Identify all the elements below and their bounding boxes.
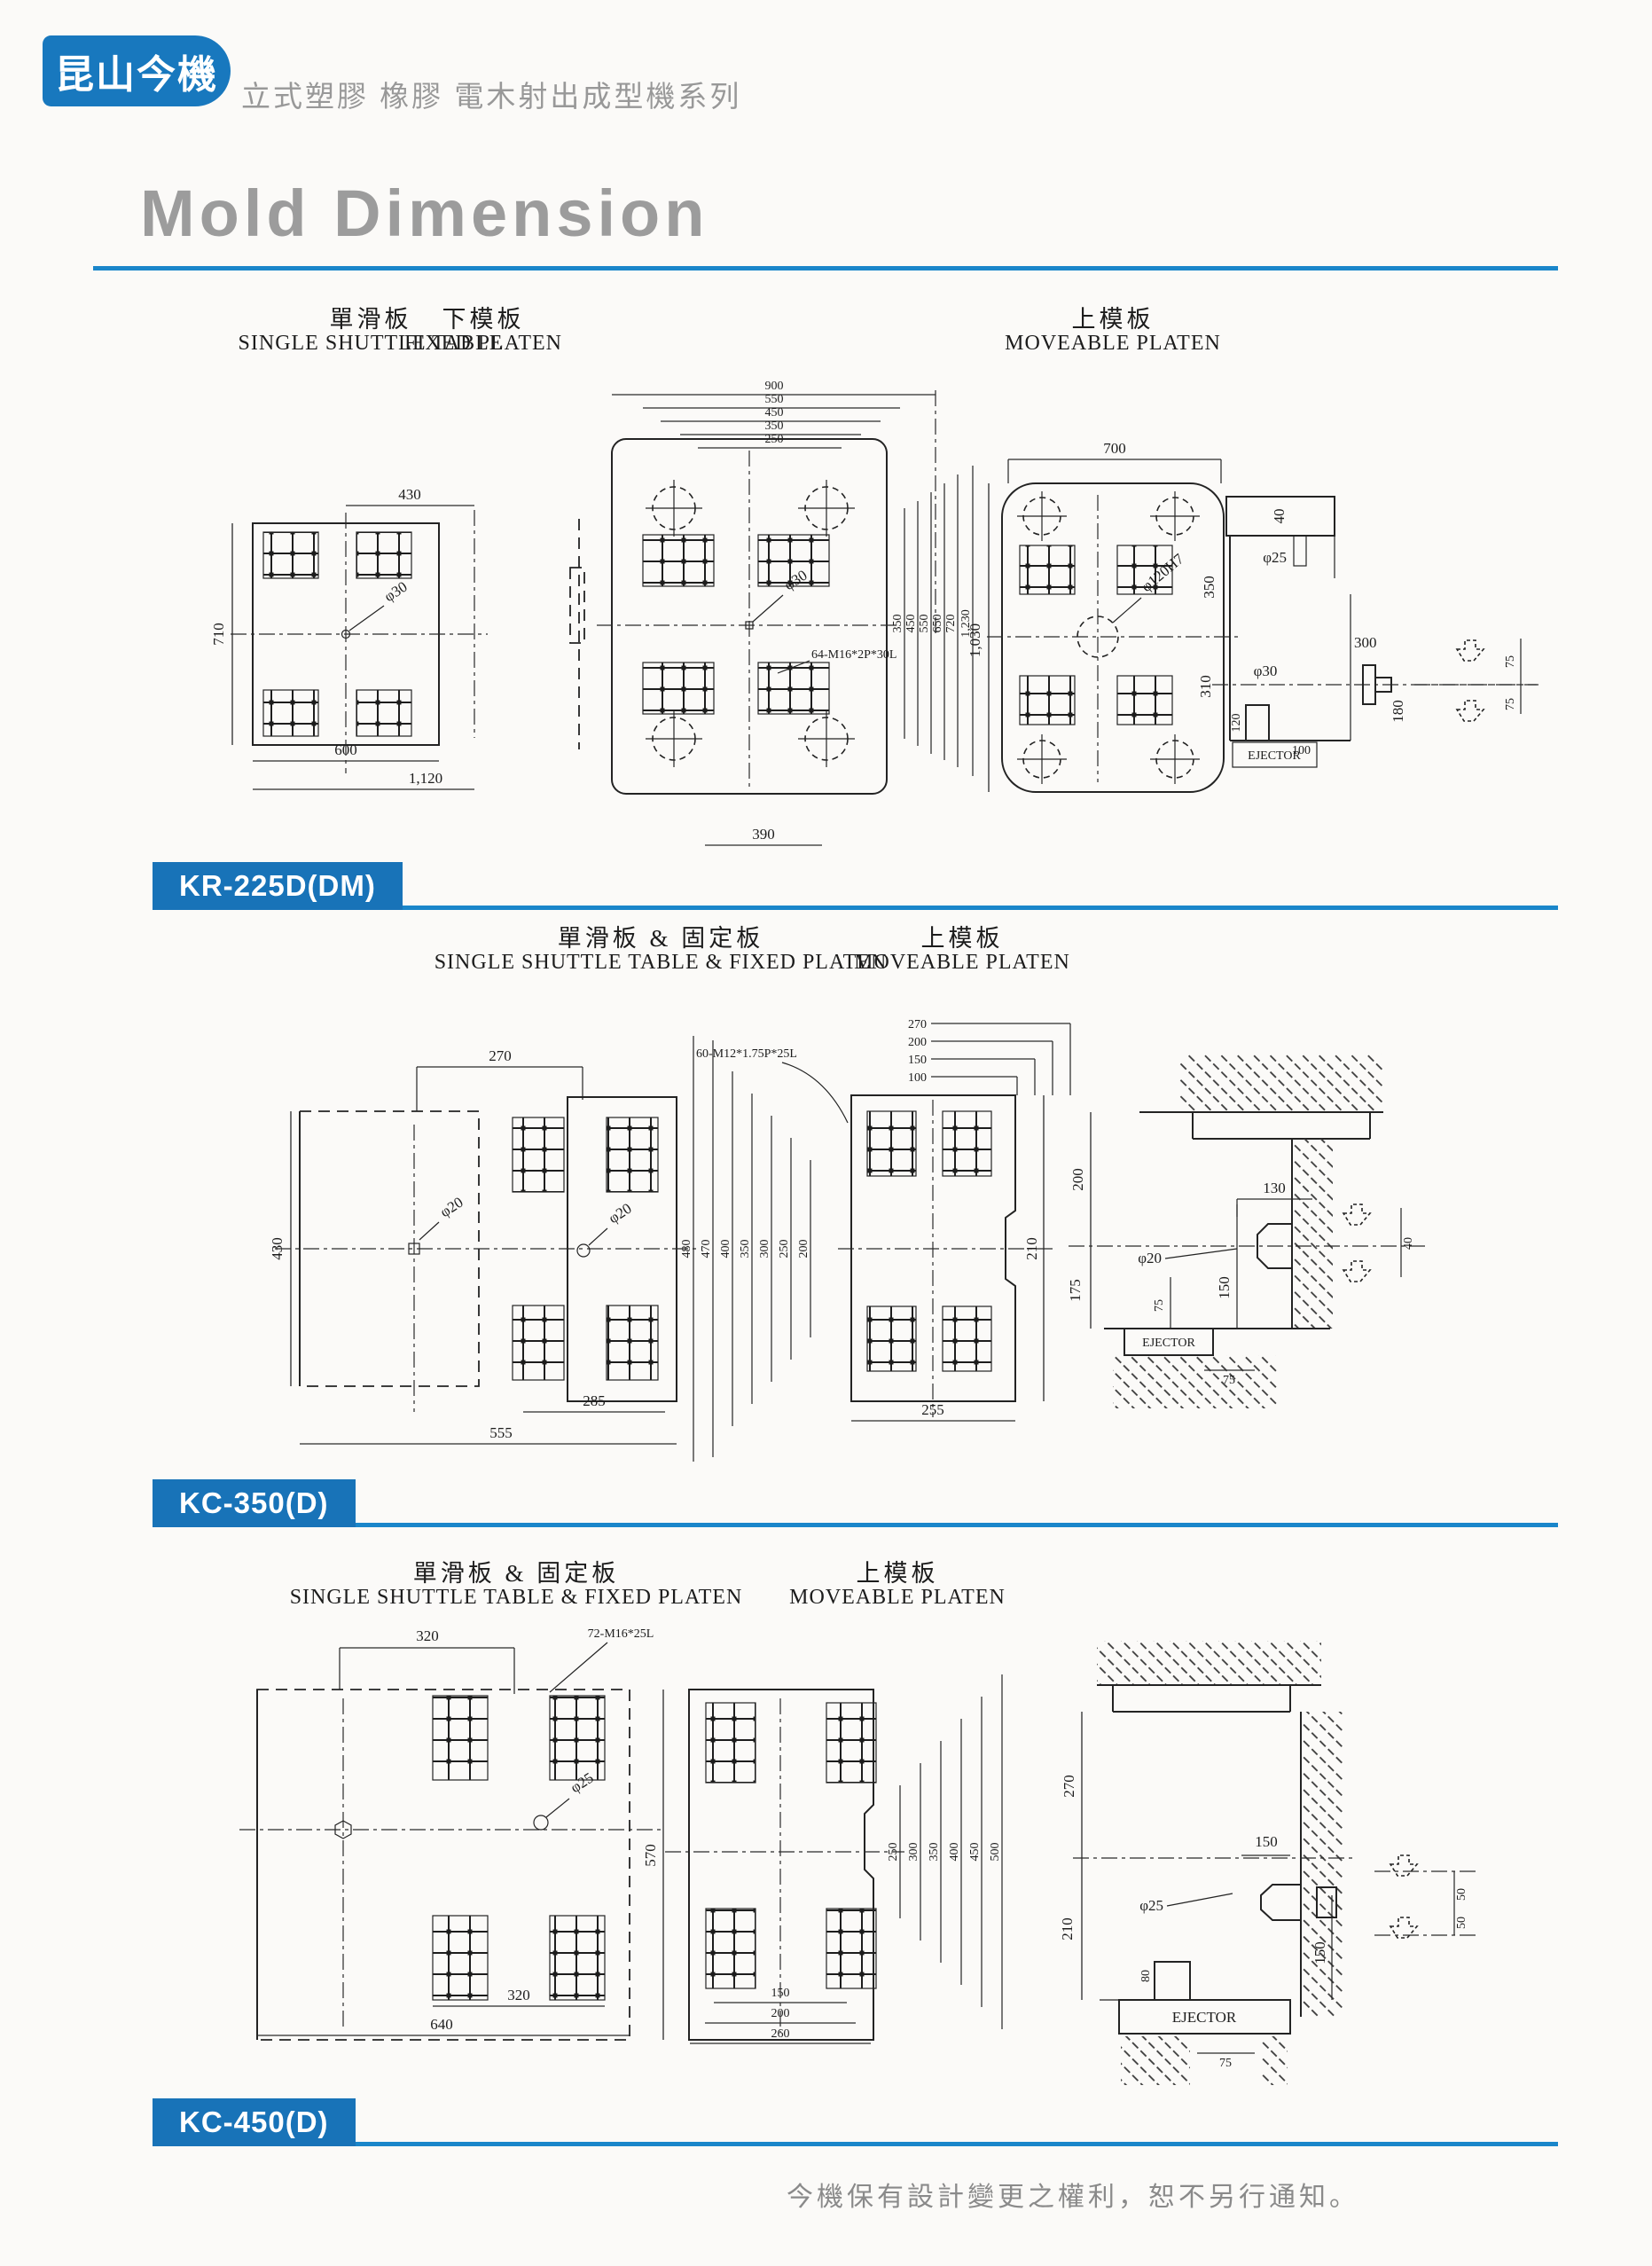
s1-fixed-platen-drawing: 900 550 450 350 250 φ30 64-M16*2P*30L 35… (545, 359, 998, 869)
dim-label: 1,030 (967, 623, 983, 657)
dim-label: 1,120 (409, 770, 442, 787)
plate-outline (987, 483, 1239, 792)
clamp-icon (1457, 701, 1484, 721)
s3-ejector-side-view: 270 210 150 φ25 150 80 EJECTOR 75 50 (1064, 1623, 1649, 2097)
hole-label: φ25 (1139, 1897, 1163, 1914)
dim-label: 450 (904, 615, 918, 633)
dim-label: 470 (700, 1240, 713, 1258)
dim-label: 700 (1103, 440, 1126, 457)
dim-label: 285 (583, 1392, 606, 1409)
dim-label: 130 (1263, 1180, 1286, 1196)
s1-shuttle-table-drawing: 430 710 600 1,120 φ30 (133, 479, 581, 834)
dimensions: 430 710 600 1,120 φ30 (210, 486, 474, 789)
dimensions: 270 210 150 φ25 150 80 EJECTOR 75 50 (1059, 1712, 1476, 2070)
dimensions: 700 1,030 φ120H7 (967, 440, 1221, 792)
dim-label: 75 (1504, 655, 1517, 668)
s2-combined-title-zh: 單滑板 & 固定板 (439, 919, 882, 953)
dim-label: 150 (771, 1987, 790, 2000)
dim-label: 650 (931, 615, 944, 633)
bolt-note: 60-M12*1.75P*25L (696, 1047, 797, 1061)
side-view: 40 φ25 350 310 φ30 120 100 300 180 EJECT… (1197, 497, 1538, 767)
ejector-label: EJECTOR (1248, 749, 1301, 763)
dim-label: 570 (642, 1844, 659, 1867)
dim-label: 550 (918, 615, 931, 633)
plate-outline (231, 510, 488, 773)
dim-label: 150 (1311, 1941, 1328, 1964)
dim-label: 80 (1139, 1970, 1153, 1982)
dim-label: 430 (269, 1237, 286, 1260)
s3-combined-title-en: SINGLE SHUTTLE TABLE & FIXED PLATEN (232, 1586, 800, 1610)
dim-label: 150 (908, 1054, 927, 1067)
dim-label: 200 (908, 1036, 927, 1049)
bolt-note: 64-M16*2P*30L (811, 648, 896, 662)
dim-label: 640 (430, 2016, 453, 2033)
plate-outline (570, 390, 936, 794)
dim-label: 270 (908, 1018, 927, 1031)
dim-label: 250 (778, 1240, 791, 1258)
dim-label: 120 (1230, 714, 1243, 733)
dim-label: 260 (771, 2027, 790, 2041)
dim-label: 350 (1201, 576, 1217, 599)
dim-label: 350 (891, 615, 904, 633)
dim-label: 100 (908, 1071, 927, 1085)
page-title: Mold Dimension (140, 176, 709, 251)
s2-shuttle-fixed-drawing: 270 430 φ20 φ20 60-M12*1.75P*25L 480 470… (151, 1011, 851, 1477)
footer-notice: 今機保有設計變更之權利，恕不另行通知。 (763, 2175, 1383, 2214)
dim-label: 350 (765, 419, 784, 433)
model-badge: KR-225D(DM) (153, 862, 403, 910)
dim-label: 50 (1455, 1888, 1468, 1901)
dim-label: 320 (416, 1627, 439, 1644)
hole-label: φ20 (437, 1194, 466, 1221)
dim-label: 400 (948, 1843, 961, 1862)
dim-label: 200 (797, 1240, 810, 1258)
dim-label: 270 (489, 1047, 512, 1064)
dim-label: 175 (1067, 1279, 1084, 1302)
s2-moveable-title-en: MOVEABLE PLATEN (785, 951, 1139, 975)
model-divider-line (153, 2142, 1558, 2146)
clamp-icon (1457, 640, 1484, 661)
dim-label: 210 (1059, 1917, 1076, 1941)
model-badge: KC-350(D) (153, 1479, 356, 1527)
model-bar: KC-350(D) (153, 1479, 1558, 1527)
s1-moveable-title-zh: 上模板 (980, 300, 1246, 334)
s3-moveable-platen-drawing: 570 250 300 350 400 450 500 150 200 260 (638, 1623, 1064, 2102)
catalog-page: 昆山今機 立式塑膠 橡膠 電木射出成型機系列 Mold Dimension 單滑… (0, 0, 1652, 2266)
s3-moveable-title-en: MOVEABLE PLATEN (720, 1586, 1075, 1610)
brand-badge: 昆山今機 (43, 35, 231, 106)
hole-label: φ25 (1263, 549, 1287, 566)
dim-label: 180 (1390, 700, 1406, 723)
dim-label: 900 (765, 380, 784, 393)
plate-outline (275, 1097, 701, 1412)
dimensions: 200 175 130 φ20 150 75 EJECTOR 75 40 (1067, 1112, 1428, 1387)
dim-label: 40 (1271, 509, 1288, 524)
ejector-label: EJECTOR (1172, 2009, 1237, 2026)
dim-label: 150 (1255, 1833, 1278, 1850)
clamp-icon (1343, 1261, 1370, 1282)
hole-label: φ20 (606, 1200, 635, 1227)
dim-label: 310 (1197, 675, 1214, 698)
dim-label: 75 (1223, 1374, 1235, 1387)
dim-label: 300 (907, 1843, 920, 1862)
dim-label: 450 (765, 406, 784, 419)
dim-label: 400 (719, 1240, 732, 1258)
s2-moveable-title-zh: 上模板 (829, 919, 1095, 953)
brand-logo-text: 昆山今機 (55, 43, 218, 99)
ejector-label: EJECTOR (1142, 1337, 1195, 1350)
dim-label: 600 (334, 741, 357, 758)
s1-fixed-title-zh: 下模板 (350, 300, 616, 334)
dim-label: 270 (1061, 1775, 1077, 1798)
dim-label: 500 (989, 1843, 1002, 1862)
dim-label: 250 (887, 1843, 900, 1862)
s1-fixed-title-en: FIXED PLATEN (368, 332, 599, 356)
dim-label: 210 (1023, 1237, 1040, 1260)
model-bar: KR-225D(DM) (153, 862, 1558, 910)
dim-label: 390 (752, 826, 775, 843)
dim-label: 350 (928, 1843, 941, 1862)
dim-label: 200 (771, 2007, 790, 2020)
dim-label: 555 (489, 1424, 513, 1441)
dim-label: 550 (765, 393, 784, 406)
dim-label: 430 (398, 486, 421, 503)
model-bar: KC-450(D) (153, 2098, 1558, 2146)
dim-label: 450 (968, 1843, 982, 1862)
dim-label: 300 (1354, 634, 1377, 651)
s1-moveable-platen-drawing: 700 1,030 φ120H7 40 φ25 350 310 φ30 120 … (953, 364, 1649, 874)
clamp-icon (1390, 1855, 1417, 1876)
s3-shuttle-fixed-drawing: 320 72-M16*25L φ25 320 640 (204, 1623, 687, 2106)
model-divider-line (153, 1523, 1558, 1527)
hole-label: φ20 (1138, 1250, 1162, 1266)
s2-ejector-side-view: 200 175 130 φ20 150 75 EJECTOR 75 40 (1055, 1011, 1649, 1477)
plate-outline (239, 1690, 665, 2040)
s1-moveable-title-en: MOVEABLE PLATEN (953, 332, 1272, 356)
dim-label: 350 (739, 1240, 752, 1258)
dim-label: 200 (1069, 1168, 1086, 1191)
dim-label: 40 (1402, 1237, 1415, 1250)
dim-label: 50 (1455, 1917, 1468, 1929)
dim-label: 150 (1216, 1276, 1233, 1299)
s3-moveable-title-zh: 上模板 (764, 1554, 1030, 1588)
title-divider (93, 266, 1558, 271)
dim-label: 320 (507, 1987, 530, 2003)
hole-label: φ30 (1254, 663, 1278, 679)
series-subtitle: 立式塑膠 橡膠 電木射出成型機系列 (241, 73, 741, 115)
dim-label: 250 (765, 433, 784, 446)
dim-label: 75 (1219, 2057, 1232, 2070)
dimensions: 900 550 450 350 250 φ30 64-M16*2P*30L 35… (612, 380, 973, 845)
dim-label: 255 (921, 1401, 944, 1418)
hole-label: φ30 (381, 578, 411, 606)
dim-label: 480 (680, 1240, 693, 1258)
dim-label: 75 (1504, 698, 1517, 710)
s3-combined-title-zh: 單滑板 & 固定板 (294, 1554, 738, 1588)
dim-label: 710 (210, 623, 227, 646)
dim-label: 75 (1153, 1299, 1166, 1312)
model-badge: KC-450(D) (153, 2098, 356, 2146)
dimensions: 570 250 300 350 400 450 500 150 200 260 (642, 1674, 1002, 2043)
dim-label: 300 (758, 1240, 771, 1258)
clamp-icon (1343, 1204, 1370, 1225)
